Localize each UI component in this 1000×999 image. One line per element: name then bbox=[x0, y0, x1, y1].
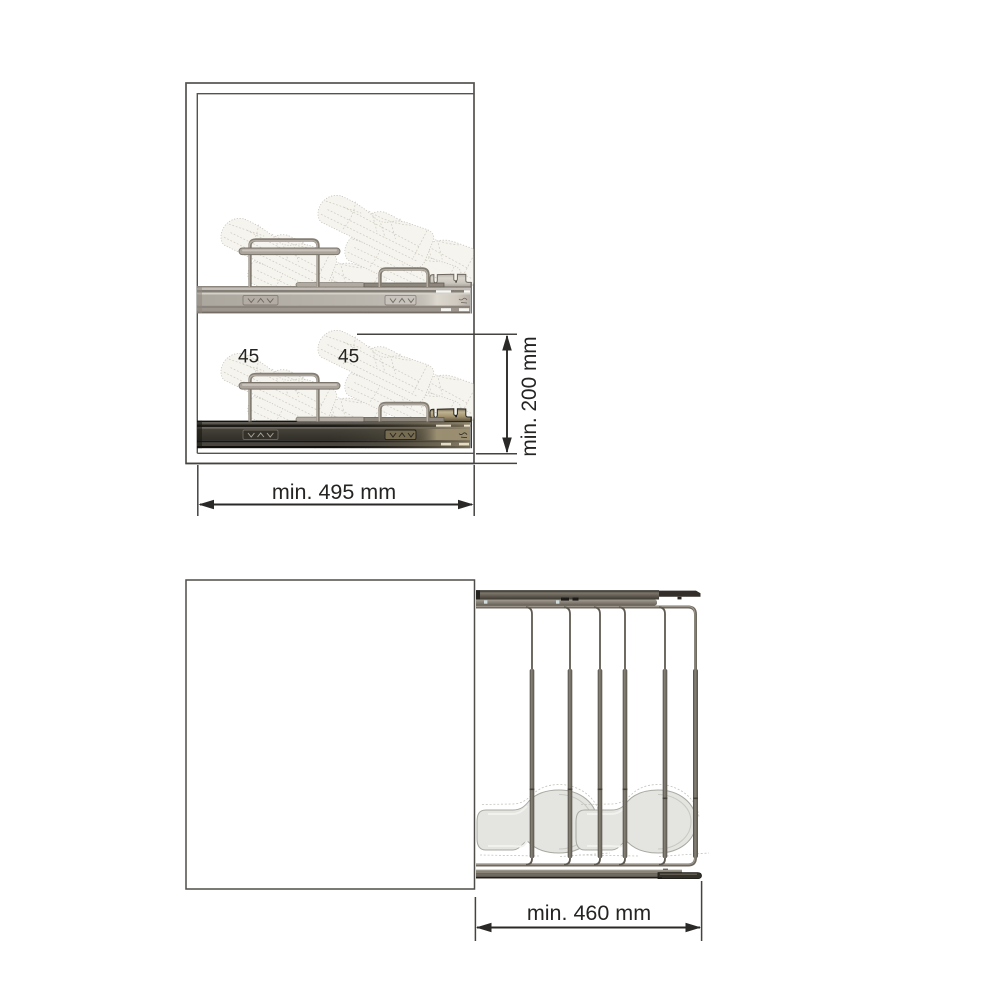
svg-text:45: 45 bbox=[238, 347, 259, 368]
svg-text:45: 45 bbox=[338, 347, 359, 368]
svg-text:min. 460 mm: min. 460 mm bbox=[527, 901, 651, 925]
svg-text:min. 495 mm: min. 495 mm bbox=[272, 480, 396, 504]
svg-text:min. 200 mm: min. 200 mm bbox=[518, 336, 541, 456]
